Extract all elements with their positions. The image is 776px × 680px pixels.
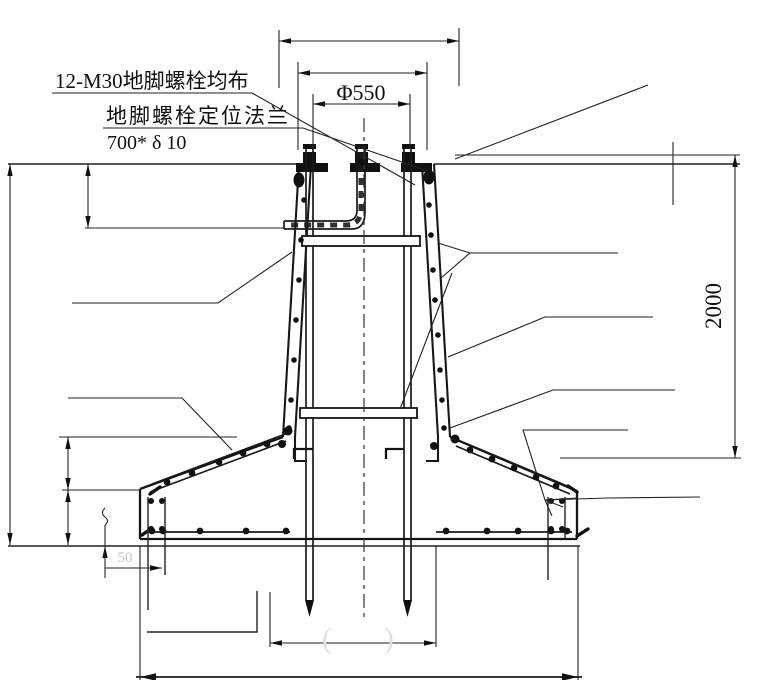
positioning-plate-mid <box>302 236 420 246</box>
dimension-top-inner <box>298 62 427 150</box>
leader-right-3 <box>450 390 675 428</box>
dimension-flange-depth <box>85 164 90 228</box>
dimension-overall-width <box>136 546 582 680</box>
lower-anchor-plate <box>300 408 417 418</box>
faded-paren-left: ( <box>322 622 332 655</box>
bolt-note-text: 12-M30地脚螺栓均布 <box>55 69 249 93</box>
faded-paren-right: ) <box>384 622 394 655</box>
height-dim-text: 2000 <box>701 283 726 329</box>
flange-washer-left <box>294 173 305 188</box>
flange-size-text: 700* δ 10 <box>107 132 186 154</box>
flange-washer-right <box>424 170 435 185</box>
dimension-height-2000: 2000 <box>560 155 741 458</box>
dimension-bolt-circle: Φ550 <box>313 80 410 149</box>
edge-offset-text: 50 <box>118 550 133 566</box>
flange-note-text: 地脚螺栓定位法兰 <box>106 104 290 128</box>
slab-bottom-rebar <box>142 528 588 536</box>
step-extension <box>147 591 257 632</box>
bolt-circle-dim-text: Φ550 <box>336 80 385 105</box>
leader-right-2 <box>448 317 653 357</box>
dimension-total-depth <box>7 164 12 545</box>
stirrup-left <box>148 497 165 610</box>
annotation-labels: 12-M30地脚螺栓均布 地脚螺栓定位法兰 700* δ 10 <box>55 69 290 154</box>
anchor-plate-left <box>294 449 313 459</box>
ground-lines <box>8 142 740 228</box>
bolt-tip-right <box>403 600 412 617</box>
leader-left-1 <box>72 252 292 303</box>
leader-right-1 <box>438 243 618 253</box>
dimension-edge-50: 50 <box>102 508 162 578</box>
drawing-canvas: Φ550 2000 50 ( <box>0 0 776 680</box>
anchor-plate-right <box>386 449 404 459</box>
bolt-tip-left <box>305 600 314 617</box>
haunch-rebar-right <box>451 435 578 495</box>
foundation-section-drawing: Φ550 2000 50 ( <box>0 0 776 680</box>
leader-top-right <box>455 85 648 159</box>
dimension-top-outer <box>279 28 459 88</box>
leader-left-2 <box>68 398 232 450</box>
